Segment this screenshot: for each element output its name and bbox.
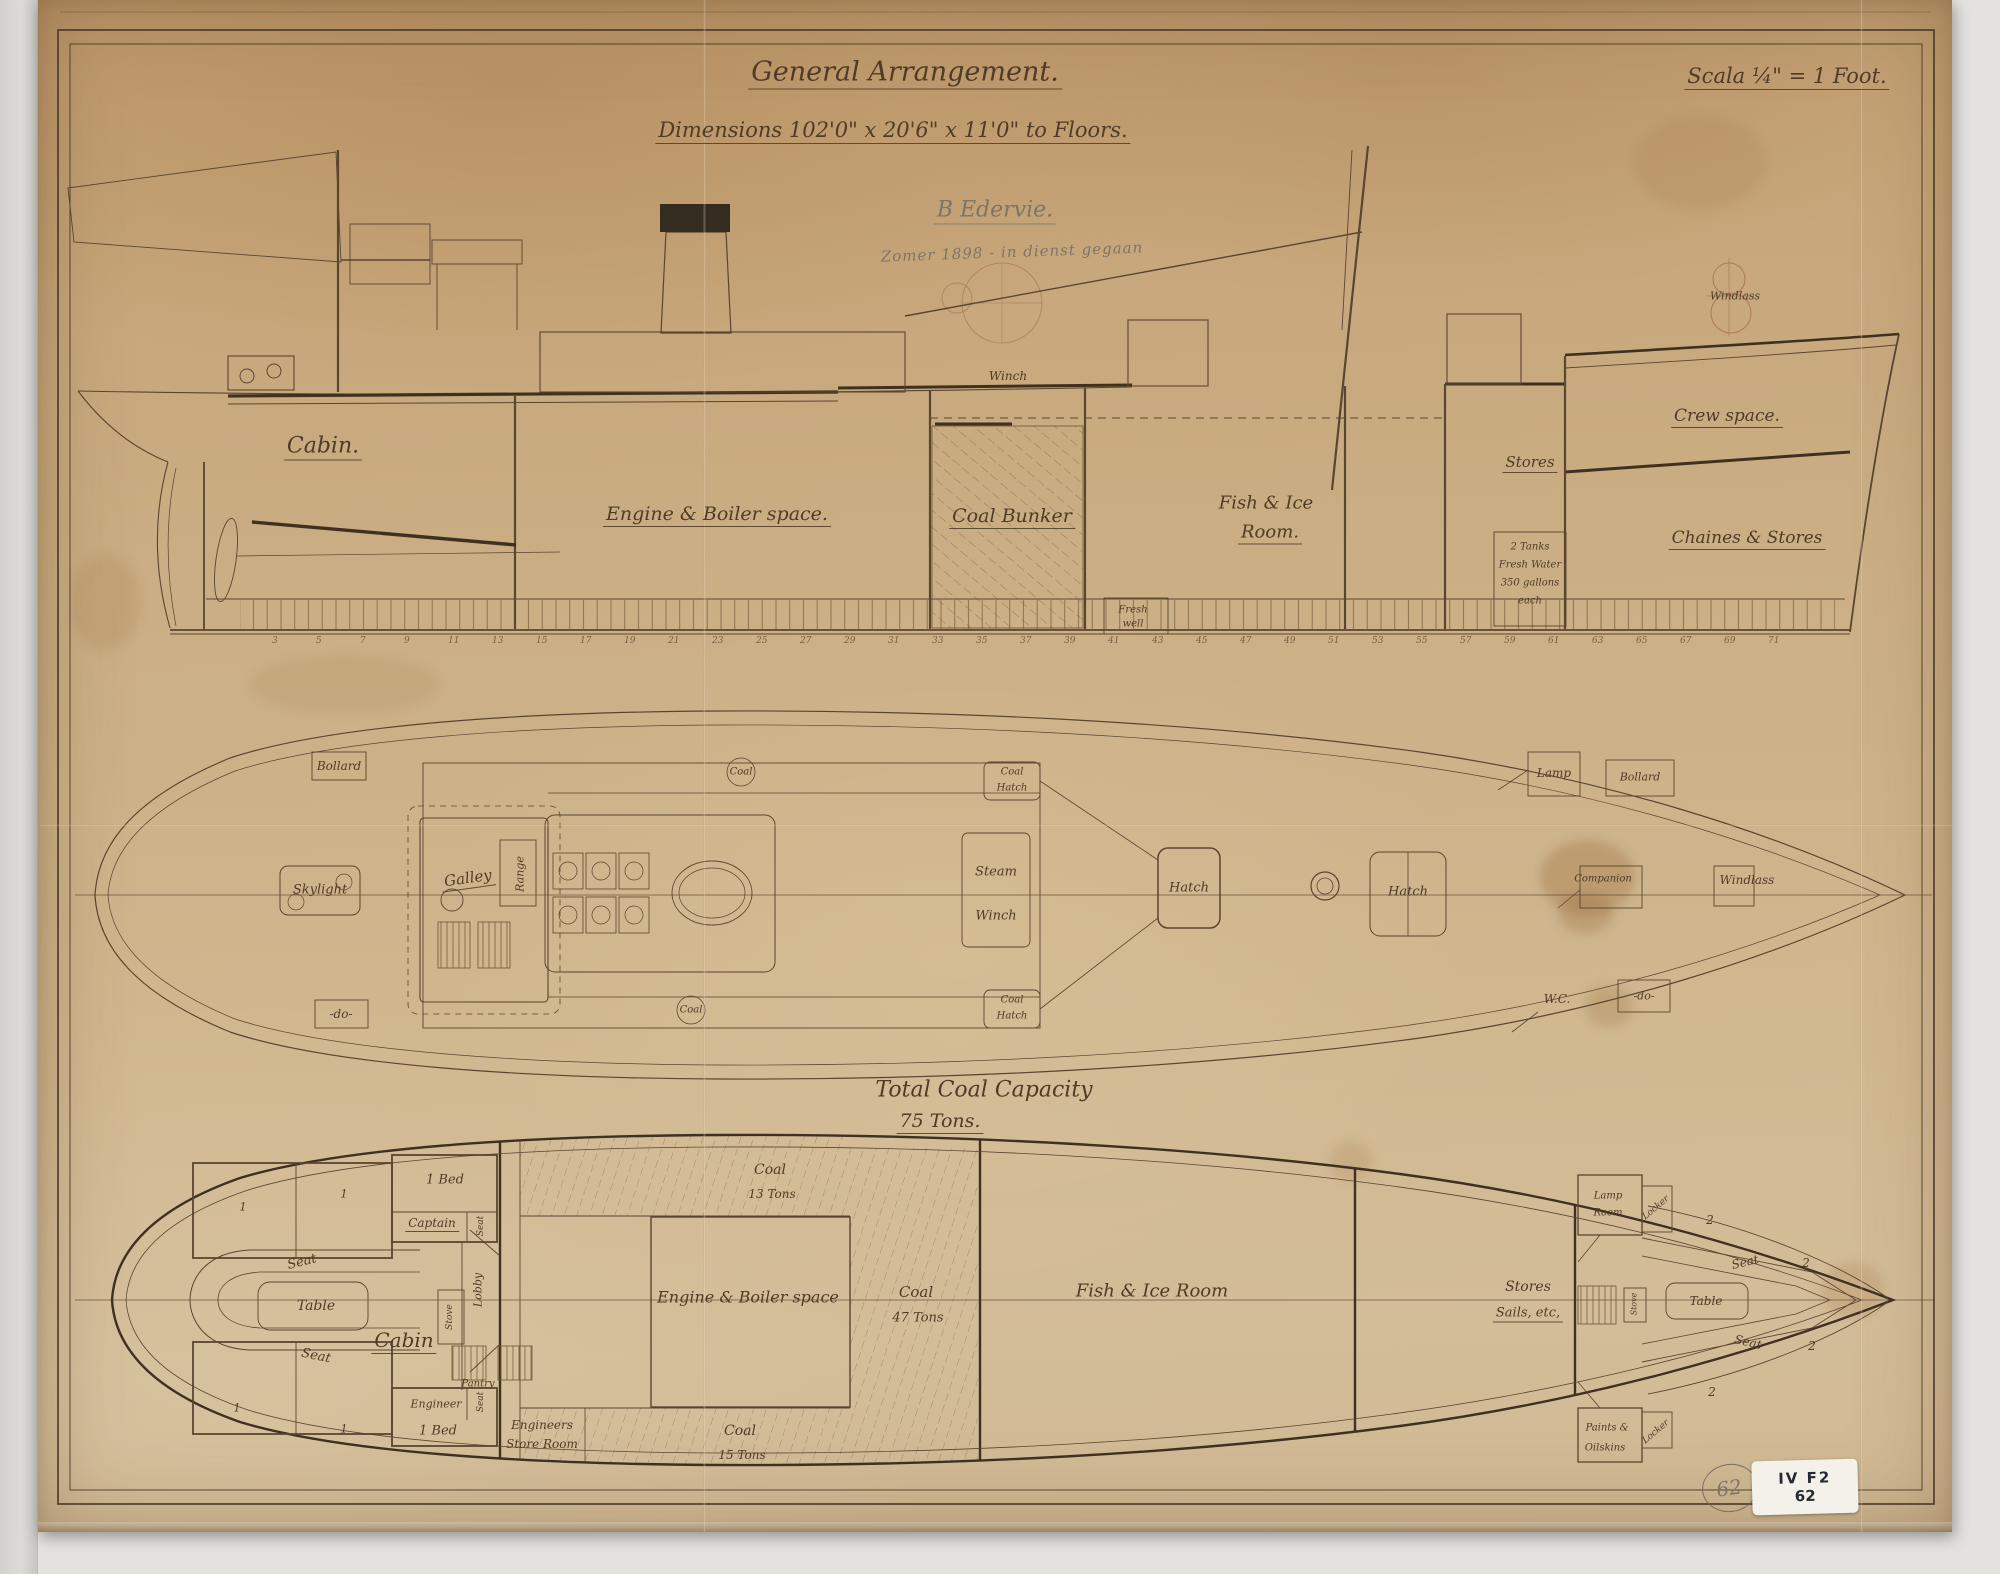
frame-number: 69 <box>1724 636 1735 646</box>
elevation-chains-stores-label: Chaines & Stores <box>1669 528 1826 550</box>
lower-paints-line2: Oilskins <box>1585 1443 1626 1454</box>
frame-number: 59 <box>1504 636 1515 646</box>
lower-seat-captain-label: Seat <box>476 1216 486 1236</box>
deck-hatch-main-label: Hatch <box>1169 881 1209 896</box>
lower-coal15-tons: 15 Tons <box>718 1448 765 1462</box>
paper-crease <box>40 824 1952 827</box>
lower-engineers-store-line1: Engineers <box>511 1418 573 1432</box>
title-scale: Scala ¼" = 1 Foot. <box>1684 64 1889 90</box>
elevation-stores-label: Stores <box>1502 453 1557 473</box>
deck-coal-top-label: Coal <box>730 767 753 778</box>
frame-number: 7 <box>360 636 366 646</box>
lower-engineer-label: Engineer <box>410 1398 461 1411</box>
stain <box>1635 115 1765 210</box>
scanned-ship-plan: General Arrangement. Dimensions 102'0" x… <box>0 0 2000 1574</box>
frame-number: 27 <box>800 636 811 646</box>
coal-capacity-title: Total Coal Capacity <box>875 1078 1092 1103</box>
deck-coal-hatch-top-line1: Coal <box>1001 767 1024 778</box>
elevation-windlass-label: Windlass <box>1710 290 1760 303</box>
deck-hatch-fore-label: Hatch <box>1388 885 1428 900</box>
elevation-fish-ice-label-line1: Fish & Ice <box>1219 493 1313 514</box>
pencil-ship-name: B Edervie. <box>934 198 1056 225</box>
lower-berth1-mark: 1 <box>240 1201 247 1214</box>
lower-berth1-mark: 1 <box>341 1423 348 1436</box>
frame-number: 45 <box>1196 636 1207 646</box>
frame-number: 29 <box>844 636 855 646</box>
fresh-well-label-line2: well <box>1123 619 1144 630</box>
lower-stores-label: Stores <box>1505 1279 1551 1295</box>
frame-number: 23 <box>712 636 723 646</box>
lower-coal47-tons: 47 Tons <box>892 1311 943 1326</box>
lower-berth2-mark: 2 <box>1708 1385 1716 1399</box>
paper-crease <box>1860 0 1863 1532</box>
tanks-note-line1: 2 Tanks <box>1510 542 1549 553</box>
lower-lamp-room-line2: Room <box>1593 1208 1622 1219</box>
lower-coal13-tons: 13 Tons <box>748 1187 795 1201</box>
stain <box>1822 1262 1884 1318</box>
lower-bed-captain-label: 1 Bed <box>426 1173 464 1188</box>
frame-number: 67 <box>1680 636 1691 646</box>
deck-companion-label: Companion <box>1574 874 1632 885</box>
archive-sticker: IV F2 62 <box>1751 1459 1858 1516</box>
lower-coal15-word: Coal <box>724 1423 756 1439</box>
tanks-note-line3: 350 gallons <box>1501 578 1560 589</box>
lower-lobby-label: Lobby <box>472 1273 485 1307</box>
lower-stove-fore-label: Stove <box>1630 1293 1639 1316</box>
sticker-shelfmark: IV F2 <box>1778 1468 1832 1487</box>
lower-captain-label: Captain <box>405 1216 459 1232</box>
title-dimensions: Dimensions 102'0" x 20'6" x 11'0" to Flo… <box>655 118 1130 144</box>
coal-capacity-total: 75 Tons. <box>897 1110 984 1134</box>
lower-pantry-label: Pantry <box>461 1379 494 1390</box>
lower-paints-line1: Paints & <box>1585 1423 1628 1434</box>
frame-number: 71 <box>1768 636 1779 646</box>
lower-table-aft-label: Table <box>297 1298 335 1314</box>
lower-berth2-mark: 2 <box>1808 1339 1816 1353</box>
stain <box>1330 1142 1372 1180</box>
lower-fish-ice-label: Fish & Ice Room <box>1076 1281 1228 1302</box>
fresh-well-label-line1: Fresh <box>1118 605 1147 616</box>
lower-seat-engineer-label: Seat <box>476 1392 486 1412</box>
frame-number: 15 <box>536 636 547 646</box>
lower-table-fore-label: Table <box>1690 1294 1723 1308</box>
deck-ditto-fore-label: -do- <box>1633 990 1654 1003</box>
deck-range-label: Range <box>514 856 527 892</box>
sticker-number: 62 <box>1795 1487 1816 1506</box>
lower-berth2-mark: 2 <box>1706 1213 1714 1227</box>
stain <box>1585 985 1633 1027</box>
stain <box>1558 892 1613 934</box>
lower-cabin-label: Cabin <box>371 1328 436 1354</box>
pencil-number: 62 <box>1715 1474 1744 1501</box>
deck-coal-bottom-label: Coal <box>680 1005 703 1016</box>
elevation-crew-space-label: Crew space. <box>1671 406 1783 428</box>
frame-number: 47 <box>1240 636 1251 646</box>
frame-number: 25 <box>756 636 767 646</box>
frame-number: 49 <box>1284 636 1295 646</box>
deck-steam-winch-line1: Steam <box>975 865 1017 880</box>
frame-number: 51 <box>1328 636 1339 646</box>
frame-number: 41 <box>1108 636 1119 646</box>
frame-number: 63 <box>1592 636 1603 646</box>
tanks-note-line2: Fresh Water <box>1499 560 1561 571</box>
frame-number: 13 <box>492 636 503 646</box>
frame-number: 43 <box>1152 636 1163 646</box>
frame-number: 61 <box>1548 636 1559 646</box>
frame-number: 53 <box>1372 636 1383 646</box>
frame-number: 33 <box>932 636 943 646</box>
deck-lamp-label: Lamp <box>1537 766 1571 780</box>
deck-skylight-label: Skylight <box>293 883 347 898</box>
frame-number: 3 <box>272 636 278 646</box>
lower-coal13-word: Coal <box>754 1162 786 1178</box>
lower-bed-engineer-label: 1 Bed <box>419 1424 457 1439</box>
lower-stove-aft-label: Stove <box>445 1304 455 1330</box>
frame-number: 21 <box>668 636 679 646</box>
frame-number: 37 <box>1020 636 1031 646</box>
lower-berth2-mark: 2 <box>1802 1256 1810 1270</box>
elevation-coal-bunker-label: Coal Bunker <box>949 505 1075 529</box>
lower-sails-etc-label: Sails, etc, <box>1493 1306 1563 1323</box>
lower-engine-boiler-label: Engine & Boiler space <box>657 1288 839 1307</box>
lower-coal47-word: Coal <box>899 1283 933 1301</box>
elevation-fish-ice-label-line2: Room. <box>1238 522 1302 545</box>
deck-coal-hatch-bottom-line2: Hatch <box>997 1011 1028 1022</box>
frame-number: 31 <box>888 636 899 646</box>
scan-sleeve-edge <box>0 0 38 1574</box>
lower-lamp-room-line1: Lamp <box>1594 1191 1623 1202</box>
deck-steam-winch-line2: Winch <box>975 909 1016 924</box>
frame-number: 11 <box>448 636 459 646</box>
elevation-engine-boiler-label: Engine & Boiler space. <box>603 503 831 527</box>
frame-number: 57 <box>1460 636 1471 646</box>
deck-bollard-aft-label: Bollard <box>317 759 361 773</box>
deck-coal-hatch-top-line2: Hatch <box>997 783 1028 794</box>
frame-number: 35 <box>976 636 987 646</box>
stain <box>70 555 140 650</box>
lower-berth1-mark: 1 <box>234 1402 241 1415</box>
deck-bollard-fore-label: Bollard <box>1620 771 1661 784</box>
title-general-arrangement: General Arrangement. <box>748 57 1062 90</box>
frame-number: 5 <box>316 636 322 646</box>
frame-number: 55 <box>1416 636 1427 646</box>
deck-coal-hatch-bottom-line1: Coal <box>1001 995 1024 1006</box>
deck-ditto-aft-label: -do- <box>329 1007 352 1021</box>
frame-number: 17 <box>580 636 591 646</box>
frame-number: 9 <box>404 636 410 646</box>
frame-number: 39 <box>1064 636 1075 646</box>
deck-wc-label: W.C. <box>1544 992 1571 1006</box>
elevation-winch-label: Winch <box>989 369 1027 383</box>
lower-engineers-store-line2: Store Room <box>506 1437 578 1451</box>
tanks-note-line4: each <box>1518 596 1542 607</box>
frame-number: 65 <box>1636 636 1647 646</box>
frame-number: 19 <box>624 636 635 646</box>
stain <box>250 655 440 715</box>
deck-windlass-label: Windlass <box>1720 873 1775 887</box>
elevation-cabin-label: Cabin. <box>284 434 362 461</box>
lower-berth1-mark: 1 <box>341 1188 348 1201</box>
